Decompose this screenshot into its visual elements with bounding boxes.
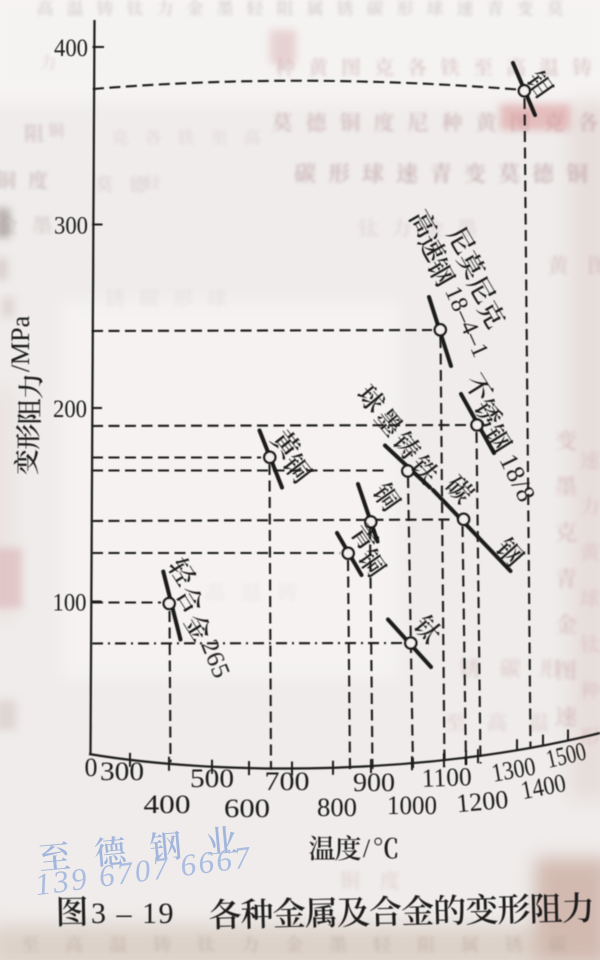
svg-text:200: 200	[53, 396, 87, 423]
svg-text:3 – 19: 3 – 19	[91, 897, 175, 930]
svg-text:0: 0	[85, 753, 98, 782]
svg-text:1000: 1000	[387, 791, 437, 820]
svg-text:100: 100	[53, 590, 87, 617]
svg-text:1200: 1200	[455, 785, 509, 818]
svg-text:300: 300	[54, 213, 88, 240]
svg-text:600: 600	[224, 794, 270, 823]
svg-text:400: 400	[54, 35, 88, 62]
svg-text:700: 700	[265, 767, 310, 796]
svg-text:/: /	[363, 834, 371, 863]
svg-text:300: 300	[100, 757, 144, 786]
svg-text:500: 500	[190, 764, 234, 793]
svg-text:400: 400	[144, 790, 191, 819]
svg-text:/MPa: /MPa	[6, 315, 35, 372]
svg-text:800: 800	[317, 793, 357, 822]
